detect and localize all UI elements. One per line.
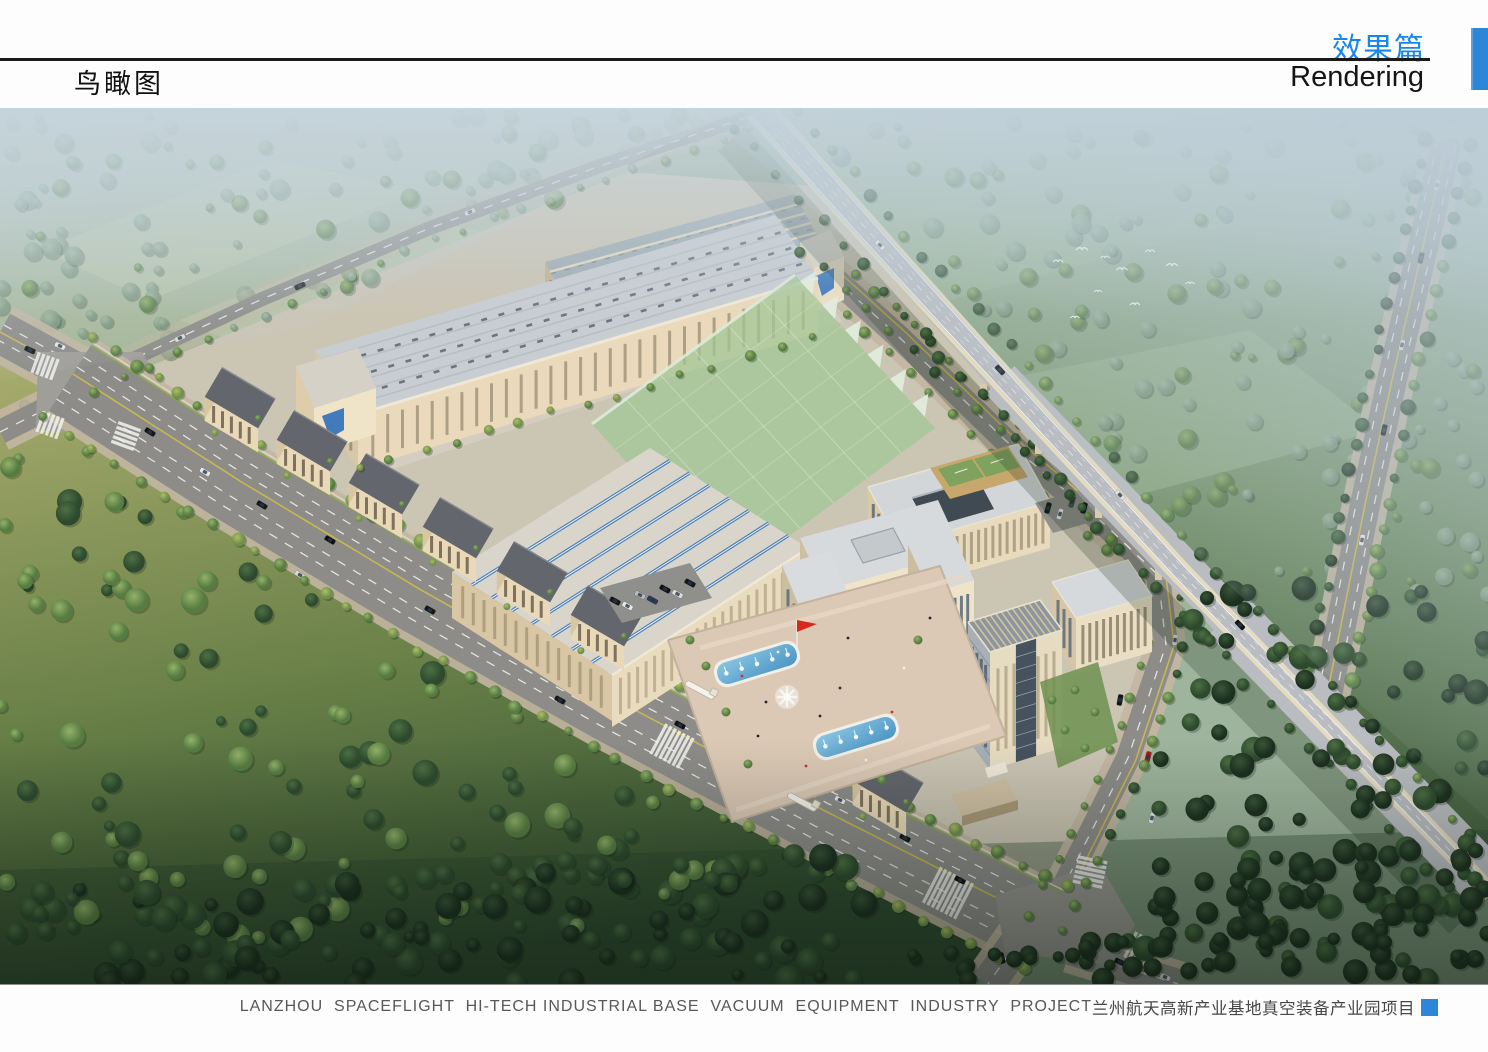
header-divider — [0, 58, 1430, 61]
section-accent-tab — [1471, 28, 1488, 90]
aerial-rendering — [0, 108, 1488, 985]
section-title-en: Rendering — [1290, 61, 1424, 94]
page-title: 鸟瞰图 — [74, 62, 164, 101]
caption: LANZHOU SPACEFLIGHT HI-TECH INDUSTRIAL B… — [240, 995, 1438, 1019]
caption-marker — [1421, 999, 1438, 1016]
aerial-rendering-image — [0, 108, 1488, 984]
caption-cn: 兰州航天高新产业基地真空装备产业园项目 — [1092, 995, 1415, 1019]
page: 效果篇 鸟瞰图 Rendering — [0, 0, 1488, 1052]
caption-en: LANZHOU SPACEFLIGHT HI-TECH INDUSTRIAL B… — [240, 998, 1092, 1016]
